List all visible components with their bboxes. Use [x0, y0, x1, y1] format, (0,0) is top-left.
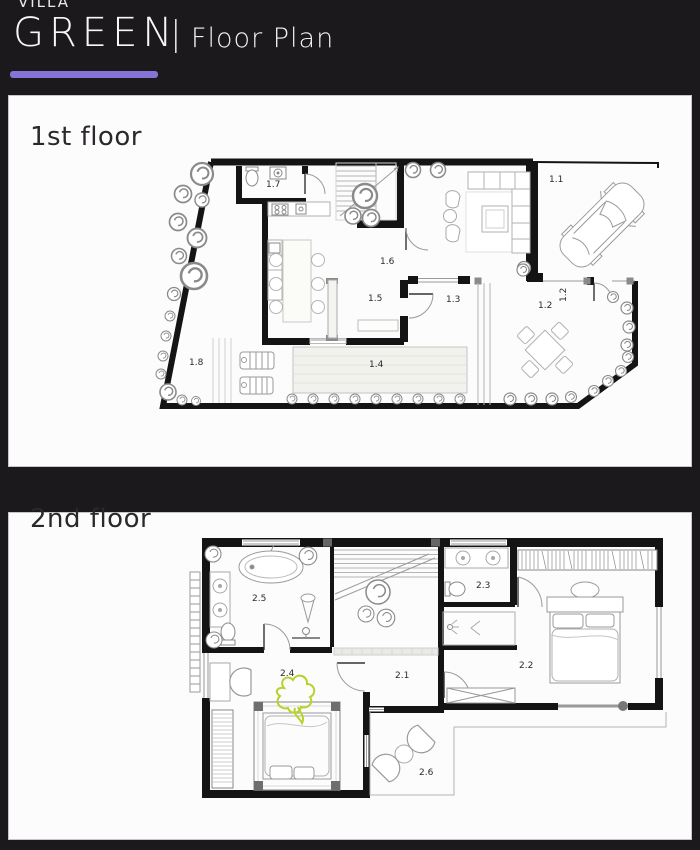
console-2-2: [447, 688, 515, 703]
patio-dining-set: [503, 308, 588, 393]
stair-plant: [353, 184, 377, 208]
vanity-2-5: [210, 572, 230, 627]
plant-pot: [406, 163, 421, 178]
header-separator: |: [170, 17, 181, 51]
car-icon: [550, 173, 653, 276]
room-label-1-7: 1.7: [266, 181, 280, 190]
stairs: [334, 550, 438, 655]
room-label-2-2: 2.2: [519, 662, 533, 671]
windows: [310, 279, 635, 344]
room-label-1-2-rotated: 1.2: [560, 288, 569, 302]
room-label-2-4: 2.4: [280, 670, 294, 679]
accent-underline: [10, 71, 158, 78]
pedestal-sink: [301, 594, 315, 622]
room-label-2-5: 2.5: [252, 595, 266, 604]
desk-2-4: [210, 663, 230, 701]
bathtub: [239, 545, 303, 583]
terrace-deck: [293, 347, 467, 393]
first-floor-title: 1st floor: [30, 124, 142, 150]
second-floor-title: 2nd floor: [30, 506, 151, 532]
toilet-2-5: [221, 623, 235, 645]
room-label-1-4: 1.4: [369, 361, 383, 370]
room-label-2-3: 2.3: [476, 582, 490, 591]
room-label-1-8: 1.8: [189, 359, 203, 368]
slider-panel: [328, 280, 337, 338]
toilet-2-3: [445, 582, 465, 596]
bench: [358, 320, 398, 331]
brand-main-label: GREEN: [13, 13, 177, 53]
sunbeds: [240, 352, 274, 394]
room-label-2-1: 2.1: [395, 672, 409, 681]
vanity-2-3: [445, 548, 508, 568]
room-label-1-2: 1.2: [538, 302, 552, 311]
wardrobe-2-4: [212, 710, 233, 788]
garden-path: [213, 338, 231, 403]
shower: [443, 612, 515, 645]
brand-top-label: VILLA: [18, 0, 70, 10]
balcony: [370, 712, 666, 795]
stair-plant: [366, 580, 390, 604]
room-label-2-6: 2.6: [419, 769, 433, 778]
armchairs: [444, 191, 461, 242]
page-title: Floor Plan: [191, 25, 334, 52]
sofa: [466, 172, 530, 253]
bed-2-2: [547, 582, 623, 683]
room-label-1-1: 1.1: [549, 176, 563, 185]
plant: [205, 546, 221, 562]
room-label-1-6: 1.6: [380, 258, 394, 267]
radiator: [190, 572, 200, 692]
wardrobe-2-2: [518, 550, 657, 570]
room-label-1-5: 1.5: [368, 295, 382, 304]
sliding-track: [478, 283, 490, 405]
first-floor-plan-drawing: [150, 150, 670, 420]
room-label-1-3: 1.3: [446, 296, 460, 305]
towel-rail: [292, 628, 320, 639]
